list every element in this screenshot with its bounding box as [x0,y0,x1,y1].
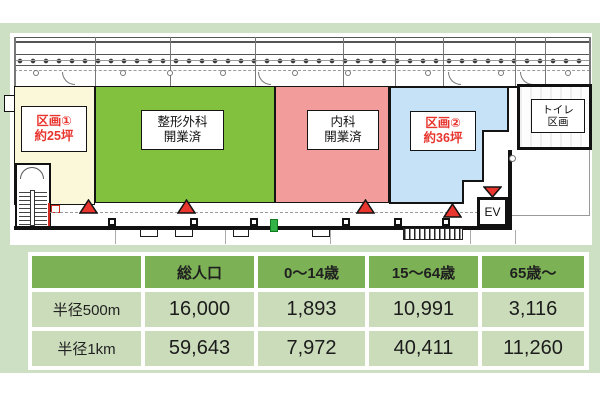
door-swing-icon [448,72,461,85]
value-1km-15-64: 40,411 [369,331,478,366]
row-label-500m: 半径500m [32,292,141,327]
grid-tick [470,230,471,244]
entrance-step [175,229,193,237]
wall-line [512,215,590,216]
red-marker-line [48,203,50,227]
column-mark [342,218,350,226]
label-internal-medicine: 内科 開業済 [307,110,379,150]
entrance-step [140,229,158,237]
label-section-1: 区画① 約25坪 [21,106,87,152]
entrance-marker-icon [443,203,462,218]
door-knob-icon [509,155,516,162]
value-1km-65plus: 11,260 [482,331,584,366]
label-text: 区画② [425,116,461,131]
corridor-dashed-line [50,212,508,213]
row-label-1km: 半径1km [32,331,141,366]
downlight-icon [120,70,126,76]
elevator-box: EV [477,197,508,227]
grid-tick [515,230,516,244]
label-toilet: トイレ 区画 [531,99,585,133]
entrance-marker-icon [79,199,98,214]
stair-rail [30,190,35,226]
column-mark [250,218,258,226]
column-mark [394,218,402,226]
table-header-0-14: 0〜14歳 [258,256,365,288]
value-1km-0-14: 7,972 [258,331,365,366]
value-500m-65plus: 3,116 [482,292,584,327]
grid-tick [330,230,331,244]
wall-line [14,37,590,38]
bay-line [95,37,96,86]
bay-line [589,37,591,88]
label-text: トイレ [542,104,574,116]
downlight-icon [220,70,226,76]
bay-line [14,37,16,88]
exterior-stairs [403,228,463,240]
entrance-marker-icon [356,199,375,214]
label-text: 区画① [36,114,72,129]
wall-notch [4,95,15,112]
bay-line [170,37,171,86]
value-500m-15-64: 10,991 [369,292,478,327]
downlight-icon [498,70,504,76]
downlight-icon [292,70,298,76]
column-mark [108,218,116,226]
bay-line [343,37,344,86]
side-wall [508,150,512,230]
value-500m-0-14: 1,893 [258,292,365,327]
value-500m-total: 16,000 [145,292,254,327]
label-orthopedics: 整形外科 開業済 [141,110,224,150]
label-text: 約36坪 [424,131,463,146]
label-section-2: 区画② 約36坪 [410,111,476,151]
elevator-label: EV [484,205,500,219]
label-text: 開業済 [164,130,202,145]
railing-band [14,54,590,66]
door-marker [270,219,278,232]
door-swing-icon [258,72,271,85]
table-header-15-64: 15〜64歳 [369,256,478,288]
entrance-step [233,229,249,237]
downlight-icon [425,70,431,76]
entrance-step [312,229,330,237]
wall-line [589,150,590,216]
bay-line [443,37,444,86]
entrance-marker-icon [177,199,196,214]
bay-line [545,37,546,86]
population-table: 総人口 0〜14歳 15〜64歳 65歳〜 半径500m 16,000 1,89… [28,252,589,370]
wall-line [14,41,590,43]
label-text: 開業済 [324,130,362,145]
downlight-icon [167,70,173,76]
grid-tick [225,230,226,244]
downlight-icon [345,70,351,76]
downlight-icon [33,70,39,76]
grid-tick [115,230,116,244]
table-header-empty [32,256,141,288]
label-text: 区画 [548,116,569,128]
label-text: 約25坪 [35,129,74,144]
value-1km-total: 59,643 [145,331,254,366]
bay-line [395,37,396,86]
downlight-icon [565,70,571,76]
column-mark [190,218,198,226]
door-swing-icon [62,72,75,85]
wall-line [508,86,517,88]
bay-line [255,37,256,86]
label-text: 整形外科 [157,115,207,130]
bay-line [515,37,516,86]
table-header-total: 総人口 [145,256,254,288]
column-mark [442,218,450,226]
label-text: 内科 [330,115,355,130]
table-header-65plus: 65歳〜 [482,256,584,288]
